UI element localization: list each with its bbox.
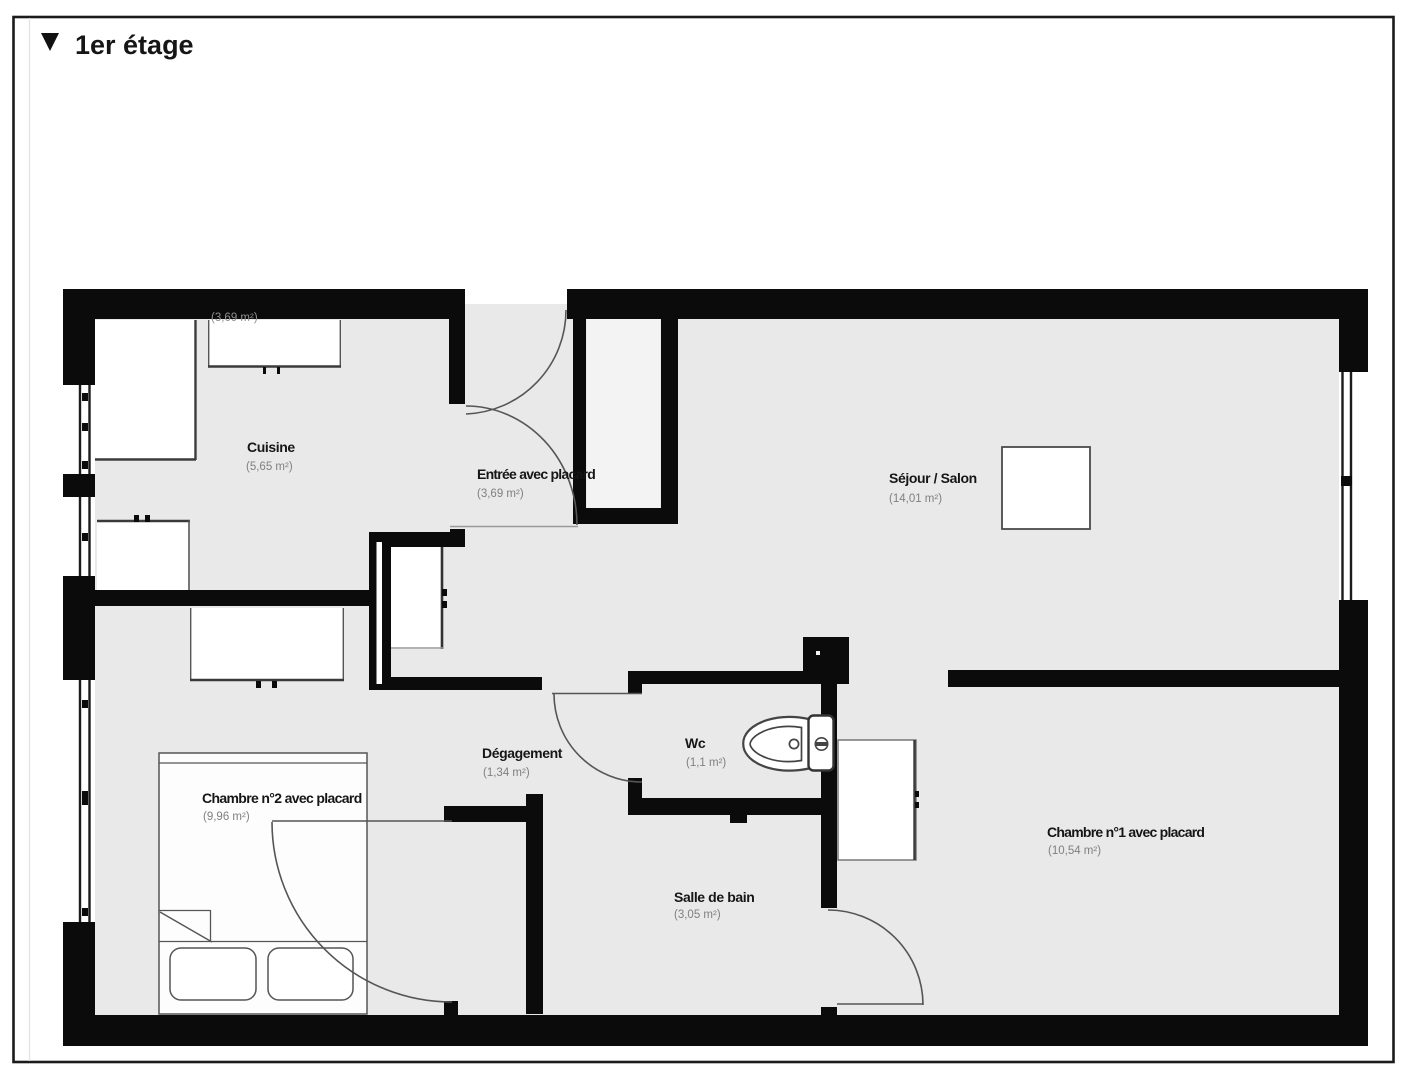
svg-text:Wc: Wc — [685, 735, 706, 751]
svg-text:Cuisine: Cuisine — [247, 439, 295, 455]
svg-text:Chambre n°1 avec placard: Chambre n°1 avec placard — [1047, 824, 1204, 840]
svg-text:(3,69 m²): (3,69 m²) — [211, 312, 258, 324]
svg-text:(14,01 m²): (14,01 m²) — [889, 493, 942, 505]
svg-text:(3,69 m²): (3,69 m²) — [477, 488, 524, 500]
svg-text:(9,96 m²): (9,96 m²) — [203, 811, 250, 823]
svg-text:(1,1 m²): (1,1 m²) — [686, 757, 726, 769]
svg-text:Entrée avec placard: Entrée avec placard — [477, 466, 595, 482]
svg-text:Chambre n°2 avec placard: Chambre n°2 avec placard — [202, 790, 362, 806]
svg-text:(5,65 m²): (5,65 m²) — [246, 461, 293, 473]
svg-text:(1,34 m²): (1,34 m²) — [483, 767, 530, 779]
svg-text:Dégagement: Dégagement — [482, 745, 563, 761]
svg-text:1er étage: 1er étage — [75, 30, 194, 60]
svg-text:(10,54 m²): (10,54 m²) — [1048, 845, 1101, 857]
svg-text:Salle de bain: Salle de bain — [674, 889, 754, 905]
svg-text:Séjour / Salon: Séjour / Salon — [889, 470, 977, 486]
svg-text:(3,05 m²): (3,05 m²) — [674, 909, 721, 921]
